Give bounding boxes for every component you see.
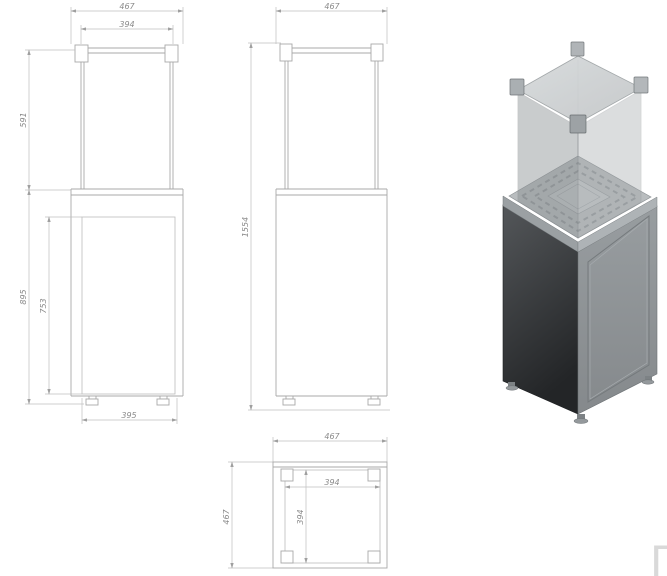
side-corner-bracket-right xyxy=(371,44,383,61)
front-corner-bracket-left xyxy=(75,45,88,62)
side-feet xyxy=(283,396,380,405)
front-door-panel xyxy=(82,217,175,394)
front-feet xyxy=(86,396,169,405)
dim-side-total-width: 467 xyxy=(324,2,340,11)
dim-front-base-width: 395 xyxy=(121,411,136,420)
dim-front-base-height: 895 xyxy=(19,289,28,304)
side-view: 467 1554 xyxy=(241,2,390,410)
watermark-letter: Γ xyxy=(650,541,667,576)
drawing-canvas: 467 394 591 895 xyxy=(0,0,667,576)
technical-drawing-page: 467 394 591 895 xyxy=(0,0,667,576)
dim-side-total-height: 1554 xyxy=(241,217,250,237)
dim-plan-total-width: 467 xyxy=(324,432,340,441)
dim-front-glass-height: 591 xyxy=(19,112,28,127)
dim-plan-inner-width: 394 xyxy=(324,478,339,487)
plan-view: 467 467 394 394 xyxy=(222,432,387,568)
front-view: 467 394 591 895 xyxy=(19,2,183,424)
isometric-render xyxy=(503,42,657,424)
side-corner-bracket-left xyxy=(280,44,292,61)
dim-front-door-height: 753 xyxy=(39,298,48,313)
dim-plan-inner-depth: 394 xyxy=(296,509,305,524)
dim-front-glass-width: 394 xyxy=(119,20,134,29)
dim-plan-total-depth: 467 xyxy=(222,508,231,524)
front-corner-bracket-right xyxy=(165,45,178,62)
dim-front-total-width: 467 xyxy=(119,2,135,11)
